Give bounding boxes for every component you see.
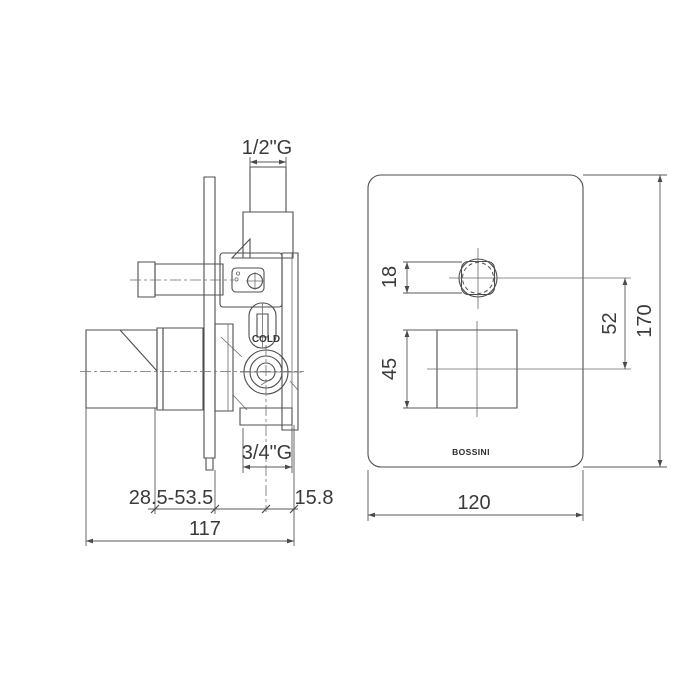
mixer-valve-technical-drawing: 1/2"G 3/4"G 28.5-53.5 15.8 xyxy=(0,0,700,700)
dim-wall-range-and-offset: 28.5-53.5 15.8 xyxy=(129,408,334,546)
body-pin-2 xyxy=(235,278,238,281)
main-handle-taper xyxy=(120,330,157,371)
dim-knob-to-handle: 52 xyxy=(599,278,627,369)
technical-drawing-page: 1/2"G 3/4"G 28.5-53.5 15.8 xyxy=(0,0,700,700)
label-total-depth: 117 xyxy=(189,518,221,540)
top-pipe xyxy=(250,167,286,212)
front-view: BOSSINI xyxy=(368,175,631,467)
main-handle-ring xyxy=(157,328,163,410)
valve-body-block xyxy=(220,253,282,307)
dim-knob-diameter: 18 xyxy=(379,262,462,293)
label-plate-width: 120 xyxy=(457,492,490,514)
dim-total-depth: 117 xyxy=(86,408,294,546)
body-pin-1 xyxy=(236,272,239,275)
side-view-dimensions: 1/2"G 3/4"G 28.5-53.5 15.8 xyxy=(86,137,333,546)
label-bottom-thread: 3/4"G xyxy=(242,442,292,464)
label-handle-square: 45 xyxy=(379,358,401,380)
label-cold: COLD xyxy=(252,334,280,345)
label-top-thread: 1/2"G xyxy=(242,137,292,159)
face-plate xyxy=(368,175,583,467)
dim-plate-width: 120 xyxy=(368,470,583,521)
wall-plate-foot xyxy=(206,458,213,470)
dim-bottom-thread: 3/4"G xyxy=(242,428,292,473)
body-flange xyxy=(215,324,233,411)
main-handle-grip xyxy=(86,330,157,408)
body-column xyxy=(282,253,298,430)
label-knob-to-handle: 52 xyxy=(599,312,621,334)
label-plate-height: 170 xyxy=(634,304,656,337)
label-wall-adjust-range: 28.5-53.5 xyxy=(129,487,214,509)
diverter-knob-cap xyxy=(138,262,155,297)
dim-top-thread: 1/2"G xyxy=(242,137,292,170)
label-knob-diameter: 18 xyxy=(379,266,401,288)
diverter-knob-body xyxy=(155,264,223,295)
label-outlet-edge-offset: 15.8 xyxy=(295,487,334,509)
wall-plate-side xyxy=(204,177,215,458)
gusset-line-1 xyxy=(221,337,242,357)
gusset-line-3 xyxy=(290,381,298,390)
brand-logo: BOSSINI xyxy=(452,447,490,457)
main-handle-base xyxy=(163,328,203,410)
fitting-chamfer xyxy=(232,239,250,258)
